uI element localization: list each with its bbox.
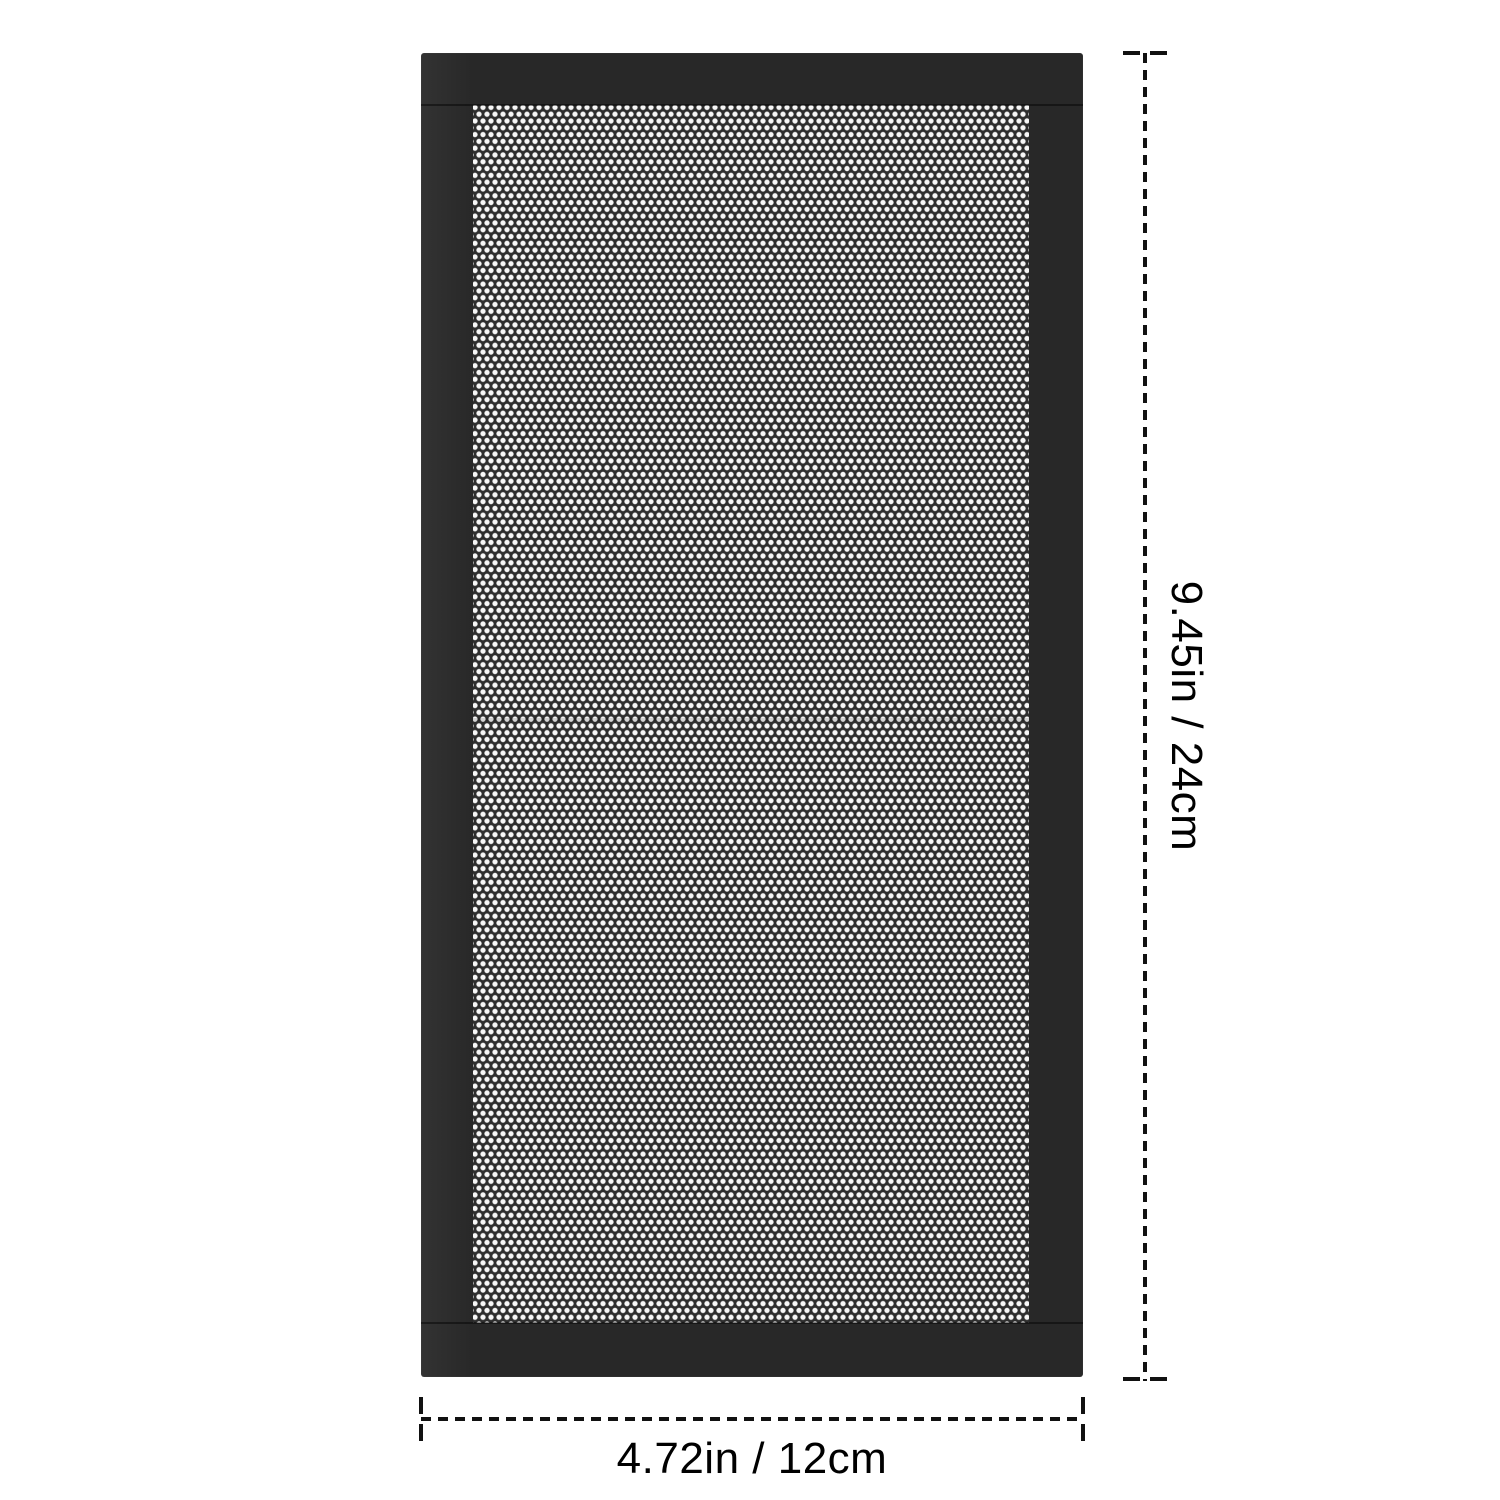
mesh-area: [473, 105, 1029, 1323]
height-dimension-tick-top: [1123, 51, 1168, 55]
frame-seam-top: [421, 104, 1083, 106]
width-dimension-line: [421, 1417, 1083, 1421]
height-dimension-label: 9.45in / 24cm: [1161, 581, 1211, 852]
mesh-middle-seam: [473, 718, 1029, 721]
frame-seam-bottom: [421, 1322, 1083, 1324]
height-dimension-tick-bottom: [1123, 1377, 1168, 1381]
height-dimension-line: [1143, 53, 1147, 1381]
dust-filter-panel: [421, 53, 1083, 1377]
product-dimension-diagram: 9.45in / 24cm 4.72in / 12cm: [0, 0, 1500, 1500]
width-dimension-label: 4.72in / 12cm: [421, 1434, 1083, 1484]
